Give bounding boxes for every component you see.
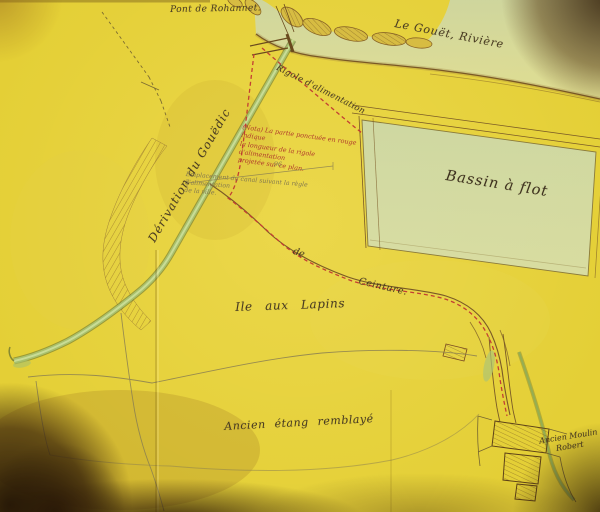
map-photo: Pont de Rohannet. Le Gouët, Rivière Déri… [0, 0, 600, 512]
label-pencil-number: 96 [273, 161, 282, 169]
label-pont-de-rohannet: Pont de Rohannet. [170, 3, 261, 15]
